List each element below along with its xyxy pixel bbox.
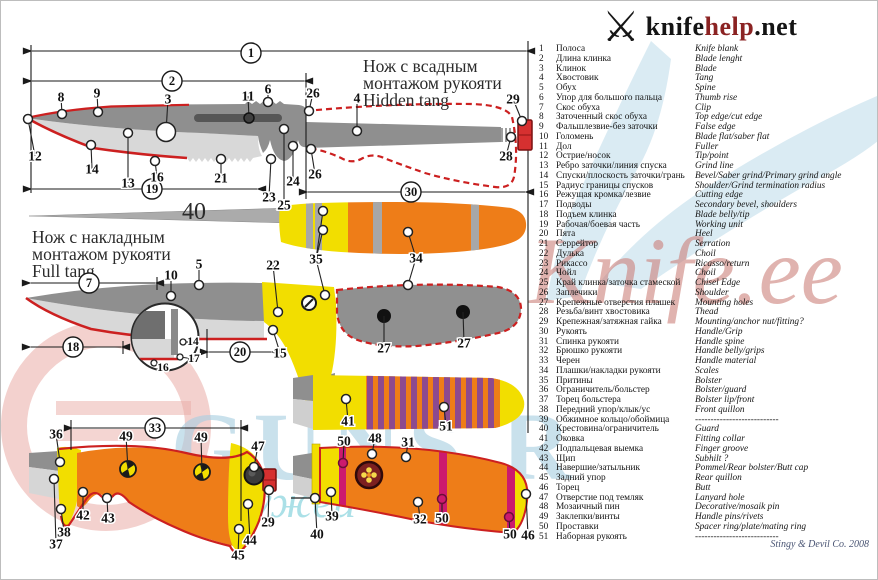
callout-6: 6 (264, 82, 273, 107)
svg-text:15: 15 (273, 346, 287, 361)
svg-text:14: 14 (85, 162, 99, 177)
callout-7: 7 (79, 273, 99, 293)
legend-term-ru: Рикассо (556, 260, 695, 270)
scales (337, 285, 521, 347)
callout-33: 33 (145, 418, 165, 438)
legend-term-ru: Рабочая/боевая часть (556, 221, 695, 231)
crossed-knives-icon: ⚔ (602, 3, 640, 51)
svg-text:26: 26 (308, 167, 322, 182)
svg-text:40: 40 (310, 527, 324, 542)
svg-text:29: 29 (261, 515, 275, 530)
svg-text:27: 27 (377, 341, 391, 356)
svg-text:49: 49 (194, 430, 208, 445)
svg-text:51: 51 (439, 419, 453, 434)
svg-text:24: 24 (286, 174, 300, 189)
svg-text:14: 14 (187, 336, 199, 348)
svg-text:37: 37 (49, 537, 63, 552)
svg-text:26: 26 (306, 86, 320, 101)
svg-text:23: 23 (262, 190, 276, 205)
svg-text:44: 44 (243, 533, 257, 548)
svg-text:33: 33 (149, 421, 162, 435)
svg-text:9: 9 (94, 86, 101, 101)
svg-text:31: 31 (401, 435, 415, 450)
mosaic-pin-feature (356, 462, 382, 488)
svg-text:3: 3 (165, 92, 172, 107)
brand-knife: knife (646, 12, 705, 41)
svg-text:36: 36 (49, 427, 63, 442)
svg-text:25: 25 (277, 198, 291, 213)
svg-text:17: 17 (188, 353, 200, 365)
svg-text:46: 46 (521, 528, 535, 543)
svg-text:49: 49 (119, 429, 133, 444)
svg-text:48: 48 (368, 431, 382, 446)
site-logo: ⚔ knifehelp.net (602, 3, 797, 51)
svg-text:47: 47 (251, 439, 265, 454)
legend: 1ПолосаKnife blank2Длина клинкаBlade len… (539, 45, 877, 542)
callout-5: 5 (195, 257, 204, 290)
callout-29: 29 (506, 92, 526, 126)
svg-text:41: 41 (341, 414, 355, 429)
svg-text:28: 28 (499, 149, 513, 164)
legend-term-ru: Наборная рукоять (556, 533, 695, 543)
svg-text:21: 21 (214, 171, 228, 186)
credit: Stingy & Devil Co. 2008 (691, 539, 869, 550)
page: GUNS.R ужей Knife.ee (0, 0, 878, 580)
svg-text:35: 35 (309, 252, 323, 267)
svg-text:11: 11 (242, 89, 255, 104)
svg-text:39: 39 (325, 509, 339, 524)
svg-text:50: 50 (337, 434, 351, 449)
svg-text:5: 5 (196, 257, 203, 272)
svg-text:29: 29 (506, 92, 520, 107)
svg-text:50: 50 (503, 527, 517, 542)
svg-text:27: 27 (457, 336, 471, 351)
callout-18: 18 (63, 337, 83, 357)
tang (306, 122, 501, 148)
brand-help: help (705, 12, 755, 41)
screw-feature (302, 296, 316, 310)
svg-text:6: 6 (265, 82, 272, 97)
svg-text:32: 32 (413, 512, 427, 527)
hidden-tang-title-en: Hidden tang (363, 90, 449, 110)
callout-2: 2 (162, 71, 182, 91)
callout-26: 26 (307, 145, 323, 182)
svg-text:50: 50 (435, 511, 449, 526)
svg-text:4: 4 (354, 91, 361, 106)
svg-text:43: 43 (101, 511, 115, 526)
callout-23: 23 (262, 155, 276, 205)
brand-text: knifehelp.net (646, 12, 798, 42)
svg-text:18: 18 (67, 340, 80, 354)
svg-text:42: 42 (76, 508, 90, 523)
callout-30: 30 (401, 182, 421, 202)
protruding-tang (29, 208, 289, 223)
callout-21: 21 (214, 155, 228, 186)
legend-number: 51 (539, 533, 556, 543)
handle-striped (293, 371, 524, 433)
brand-net: .net (754, 12, 797, 41)
svg-text:30: 30 (405, 185, 418, 199)
svg-text:16: 16 (157, 362, 169, 374)
svg-text:7: 7 (86, 276, 92, 290)
svg-text:16: 16 (150, 170, 164, 185)
svg-text:2: 2 (169, 74, 175, 88)
svg-text:1: 1 (248, 46, 254, 60)
callout-9: 9 (94, 86, 103, 117)
callout-1: 1 (241, 43, 261, 63)
svg-text:22: 22 (266, 258, 280, 273)
callout-16: 16 (150, 157, 164, 185)
legend-term-ru: Хвостовик (556, 74, 695, 84)
tang-number-label: 40 (182, 199, 206, 225)
svg-text:12: 12 (28, 149, 42, 164)
legend-term-ru: Голомень (556, 133, 695, 143)
svg-text:34: 34 (409, 251, 423, 266)
callout-4: 4 (353, 91, 362, 136)
callout-20: 20 (230, 342, 250, 362)
svg-text:8: 8 (58, 90, 65, 105)
svg-text:20: 20 (234, 345, 247, 359)
svg-text:10: 10 (164, 268, 178, 283)
fuller (194, 114, 282, 122)
svg-text:45: 45 (231, 548, 245, 563)
stripes (366, 371, 500, 433)
callout-50: 50 (435, 495, 449, 526)
svg-text:13: 13 (121, 176, 135, 191)
callout-8: 8 (58, 90, 67, 119)
legend-term-ru: Подпальцевая выемка (556, 445, 695, 455)
